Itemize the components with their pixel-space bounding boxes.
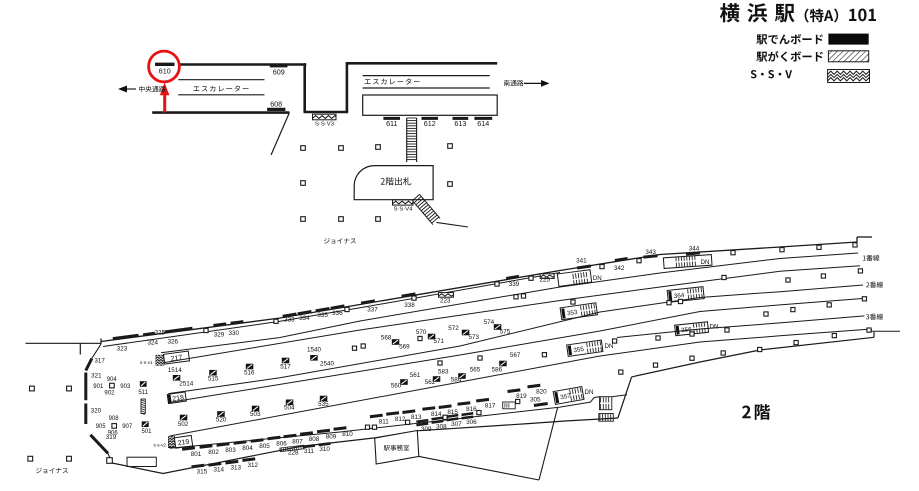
svg-text:608: 608 <box>270 99 282 108</box>
svg-text:330: 330 <box>229 330 240 337</box>
svg-text:535: 535 <box>318 401 329 408</box>
svg-text:568: 568 <box>381 335 392 342</box>
svg-text:338: 338 <box>404 302 415 309</box>
svg-text:320: 320 <box>91 408 102 415</box>
svg-text:801: 801 <box>191 451 202 458</box>
svg-text:567: 567 <box>510 352 521 359</box>
svg-text:306: 306 <box>466 419 477 426</box>
svg-text:501: 501 <box>141 429 152 435</box>
svg-text:317: 317 <box>94 357 105 364</box>
svg-text:610: 610 <box>159 67 171 76</box>
svg-text:816: 816 <box>466 406 477 413</box>
svg-text:515: 515 <box>208 375 219 382</box>
svg-text:571: 571 <box>433 338 444 345</box>
svg-text:614: 614 <box>477 119 489 128</box>
svg-text:807: 807 <box>292 438 303 445</box>
svg-text:333: 333 <box>284 316 295 323</box>
svg-text:337: 337 <box>367 307 378 314</box>
svg-text:569: 569 <box>399 343 410 350</box>
svg-text:DN: DN <box>593 275 602 282</box>
svg-text:586: 586 <box>492 366 503 373</box>
svg-text:DN: DN <box>585 389 594 396</box>
svg-text:1514: 1514 <box>168 367 183 374</box>
svg-text:321: 321 <box>91 373 102 380</box>
svg-text:806: 806 <box>276 440 287 447</box>
svg-text:DN: DN <box>701 259 710 266</box>
svg-text:511: 511 <box>138 390 148 396</box>
svg-text:341: 341 <box>576 258 587 265</box>
svg-text:339: 339 <box>509 281 520 288</box>
svg-text:s·s·v2: s·s·v2 <box>153 443 166 448</box>
svg-text:223: 223 <box>440 297 451 304</box>
svg-text:570: 570 <box>416 329 427 336</box>
svg-text:574: 574 <box>484 319 495 326</box>
svg-text:612: 612 <box>424 119 436 128</box>
svg-text:335: 335 <box>317 312 328 319</box>
svg-text:613: 613 <box>454 119 466 128</box>
svg-text:804: 804 <box>242 445 253 452</box>
svg-text:901: 901 <box>93 384 104 390</box>
svg-text:575: 575 <box>500 328 511 335</box>
svg-text:324: 324 <box>148 340 159 347</box>
svg-text:309: 309 <box>421 426 432 433</box>
svg-text:811: 811 <box>379 418 390 425</box>
svg-text:S·S·V4: S·S·V4 <box>394 207 414 213</box>
svg-text:572: 572 <box>448 325 459 332</box>
svg-text:808: 808 <box>309 436 320 443</box>
svg-text:325: 325 <box>155 330 166 337</box>
svg-text:905: 905 <box>96 424 107 430</box>
svg-text:805: 805 <box>259 443 270 450</box>
svg-text:336: 336 <box>332 310 343 317</box>
svg-text:503: 503 <box>250 411 261 418</box>
svg-text:907: 907 <box>122 424 133 430</box>
svg-text:311: 311 <box>304 448 315 455</box>
svg-text:310: 310 <box>319 446 330 453</box>
svg-text:560: 560 <box>391 383 402 390</box>
svg-text:809: 809 <box>326 433 337 440</box>
svg-text:344: 344 <box>689 245 700 252</box>
svg-text:812: 812 <box>395 416 406 423</box>
svg-text:2540: 2540 <box>320 361 335 368</box>
svg-text:s·s·v1: s·s·v1 <box>140 360 153 365</box>
svg-text:2514: 2514 <box>179 381 194 388</box>
svg-text:315: 315 <box>197 468 208 475</box>
svg-text:326: 326 <box>167 339 178 346</box>
svg-text:609: 609 <box>273 68 285 77</box>
svg-text:323: 323 <box>117 346 128 353</box>
svg-text:904: 904 <box>107 377 118 383</box>
svg-text:810: 810 <box>342 431 353 438</box>
svg-text:516: 516 <box>244 369 255 376</box>
svg-text:307: 307 <box>451 421 462 428</box>
svg-text:DN: DN <box>605 343 614 350</box>
svg-text:S·S·V3: S·S·V3 <box>315 122 335 128</box>
svg-text:329: 329 <box>214 332 225 339</box>
svg-text:502: 502 <box>178 421 189 428</box>
svg-text:906: 906 <box>108 431 119 437</box>
svg-text:908: 908 <box>109 416 120 422</box>
svg-text:228: 228 <box>288 450 299 457</box>
svg-text:583: 583 <box>438 369 449 376</box>
svg-text:334: 334 <box>299 315 310 322</box>
svg-text:520: 520 <box>216 417 227 424</box>
svg-text:308: 308 <box>436 423 447 430</box>
svg-text:DN: DN <box>710 323 719 330</box>
svg-text:565: 565 <box>470 367 481 374</box>
svg-text:803: 803 <box>225 447 236 454</box>
svg-text:573: 573 <box>468 334 479 341</box>
svg-text:504: 504 <box>284 405 295 412</box>
svg-text:802: 802 <box>208 449 219 456</box>
svg-text:903: 903 <box>120 384 131 390</box>
svg-text:342: 342 <box>614 265 625 272</box>
svg-text:313: 313 <box>231 464 242 471</box>
svg-text:314: 314 <box>214 467 225 474</box>
svg-text:312: 312 <box>248 462 259 469</box>
svg-text:1540: 1540 <box>307 347 322 354</box>
svg-text:225: 225 <box>540 276 551 283</box>
svg-text:902: 902 <box>104 391 115 397</box>
svg-text:817: 817 <box>485 403 496 410</box>
svg-text:561: 561 <box>410 372 421 379</box>
svg-text:820: 820 <box>536 388 547 395</box>
svg-text:611: 611 <box>386 119 397 128</box>
svg-text:305: 305 <box>530 396 541 403</box>
svg-text:517: 517 <box>280 363 291 370</box>
